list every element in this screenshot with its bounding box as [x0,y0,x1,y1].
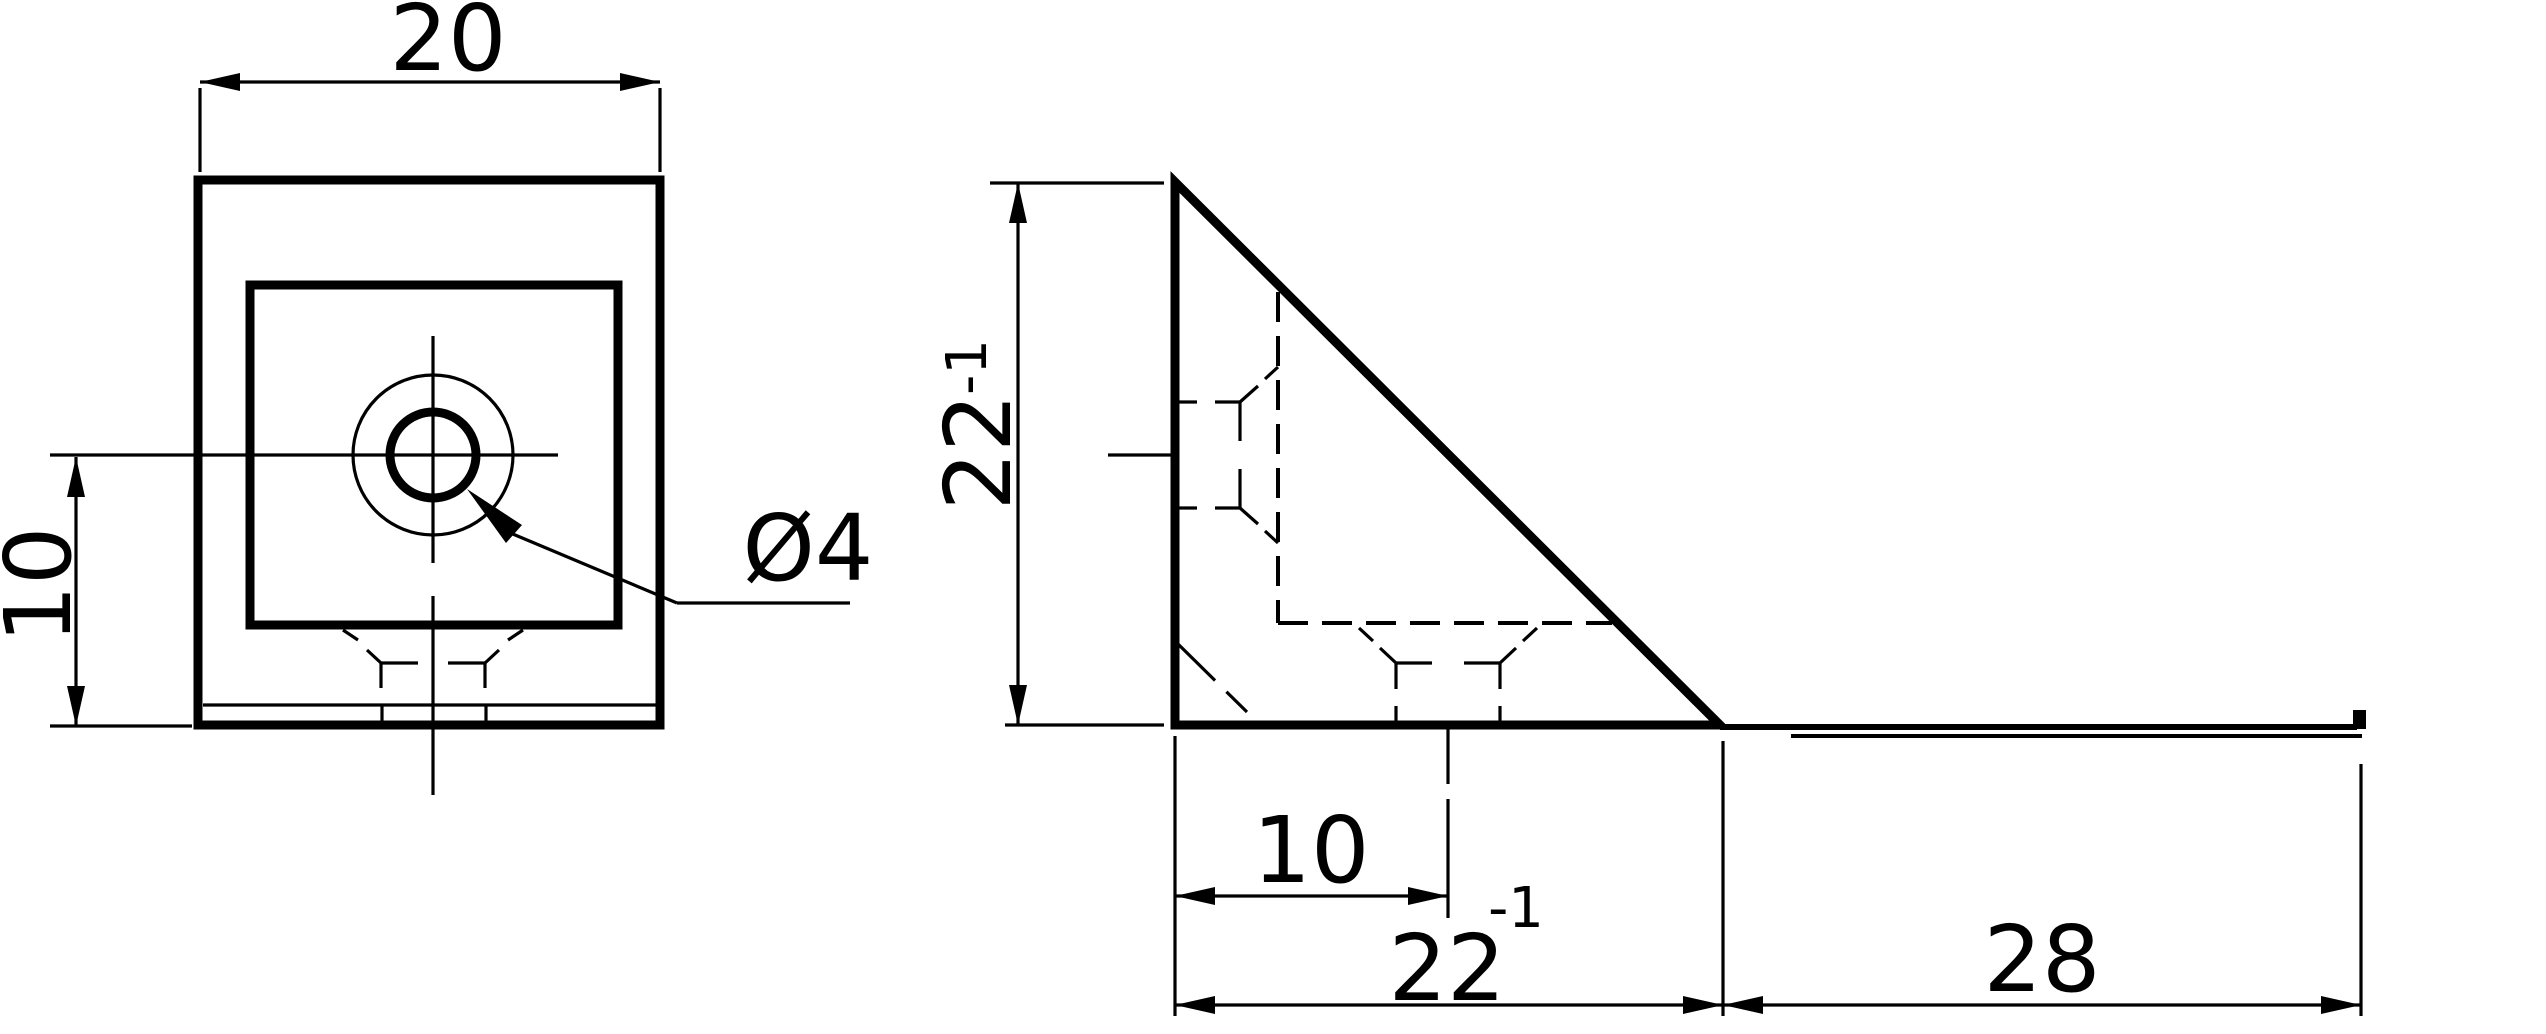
hole-callout-label: Ø4 [743,495,874,602]
dovetail-tick-right [508,630,523,640]
arrowhead-left [1723,996,1763,1014]
engineering-drawing-canvas: 20 10 Ø4 [0,0,2546,1034]
dim-width-label: 20 [389,0,506,92]
flange-end-cap [2353,710,2366,729]
arrowhead-left [1175,887,1215,905]
arrowhead-down [1009,685,1027,725]
drawing-sheet: 20 10 Ø4 [0,0,2546,1034]
dovetail-diagonal-left [367,650,381,663]
dim-offset-label: 10 [0,526,92,643]
dim-depth-tolerance: -1 [1488,876,1544,941]
dim-height-tolerance: -1 [935,339,1000,395]
dovetail-tick-left [343,630,358,640]
arrowhead-up [1009,183,1027,223]
arrowhead-right [1683,996,1723,1014]
dovetail-diagonal-right [485,650,499,663]
dim-height-label: 22 [925,393,1032,510]
dimension-flange: 28 [1723,906,2361,1014]
front-outer-outline [198,180,660,725]
arrowhead-up [67,457,85,497]
dimension-hole-offset: 10 [0,457,192,726]
arrowhead-down [67,686,85,726]
front-view: 20 10 Ø4 [0,0,873,795]
arrowhead-right [2321,996,2361,1014]
hole-callout: Ø4 [467,489,873,603]
dimension-slot-offset: 10 [1175,797,1448,905]
dim-flange-label: 28 [1983,906,2100,1013]
arrowhead-right [1408,887,1448,905]
arrowhead-left [1175,996,1215,1014]
dim-slot-offset-label: 10 [1252,797,1369,904]
gusset-triangle-outline [1175,182,1720,725]
side-view: 22 -1 10 22 -1 28 [925,182,2366,1022]
arrowhead-left [200,73,240,91]
arrowhead-right [620,73,660,91]
dimension-width: 20 [200,0,660,172]
leader-line [508,532,677,603]
